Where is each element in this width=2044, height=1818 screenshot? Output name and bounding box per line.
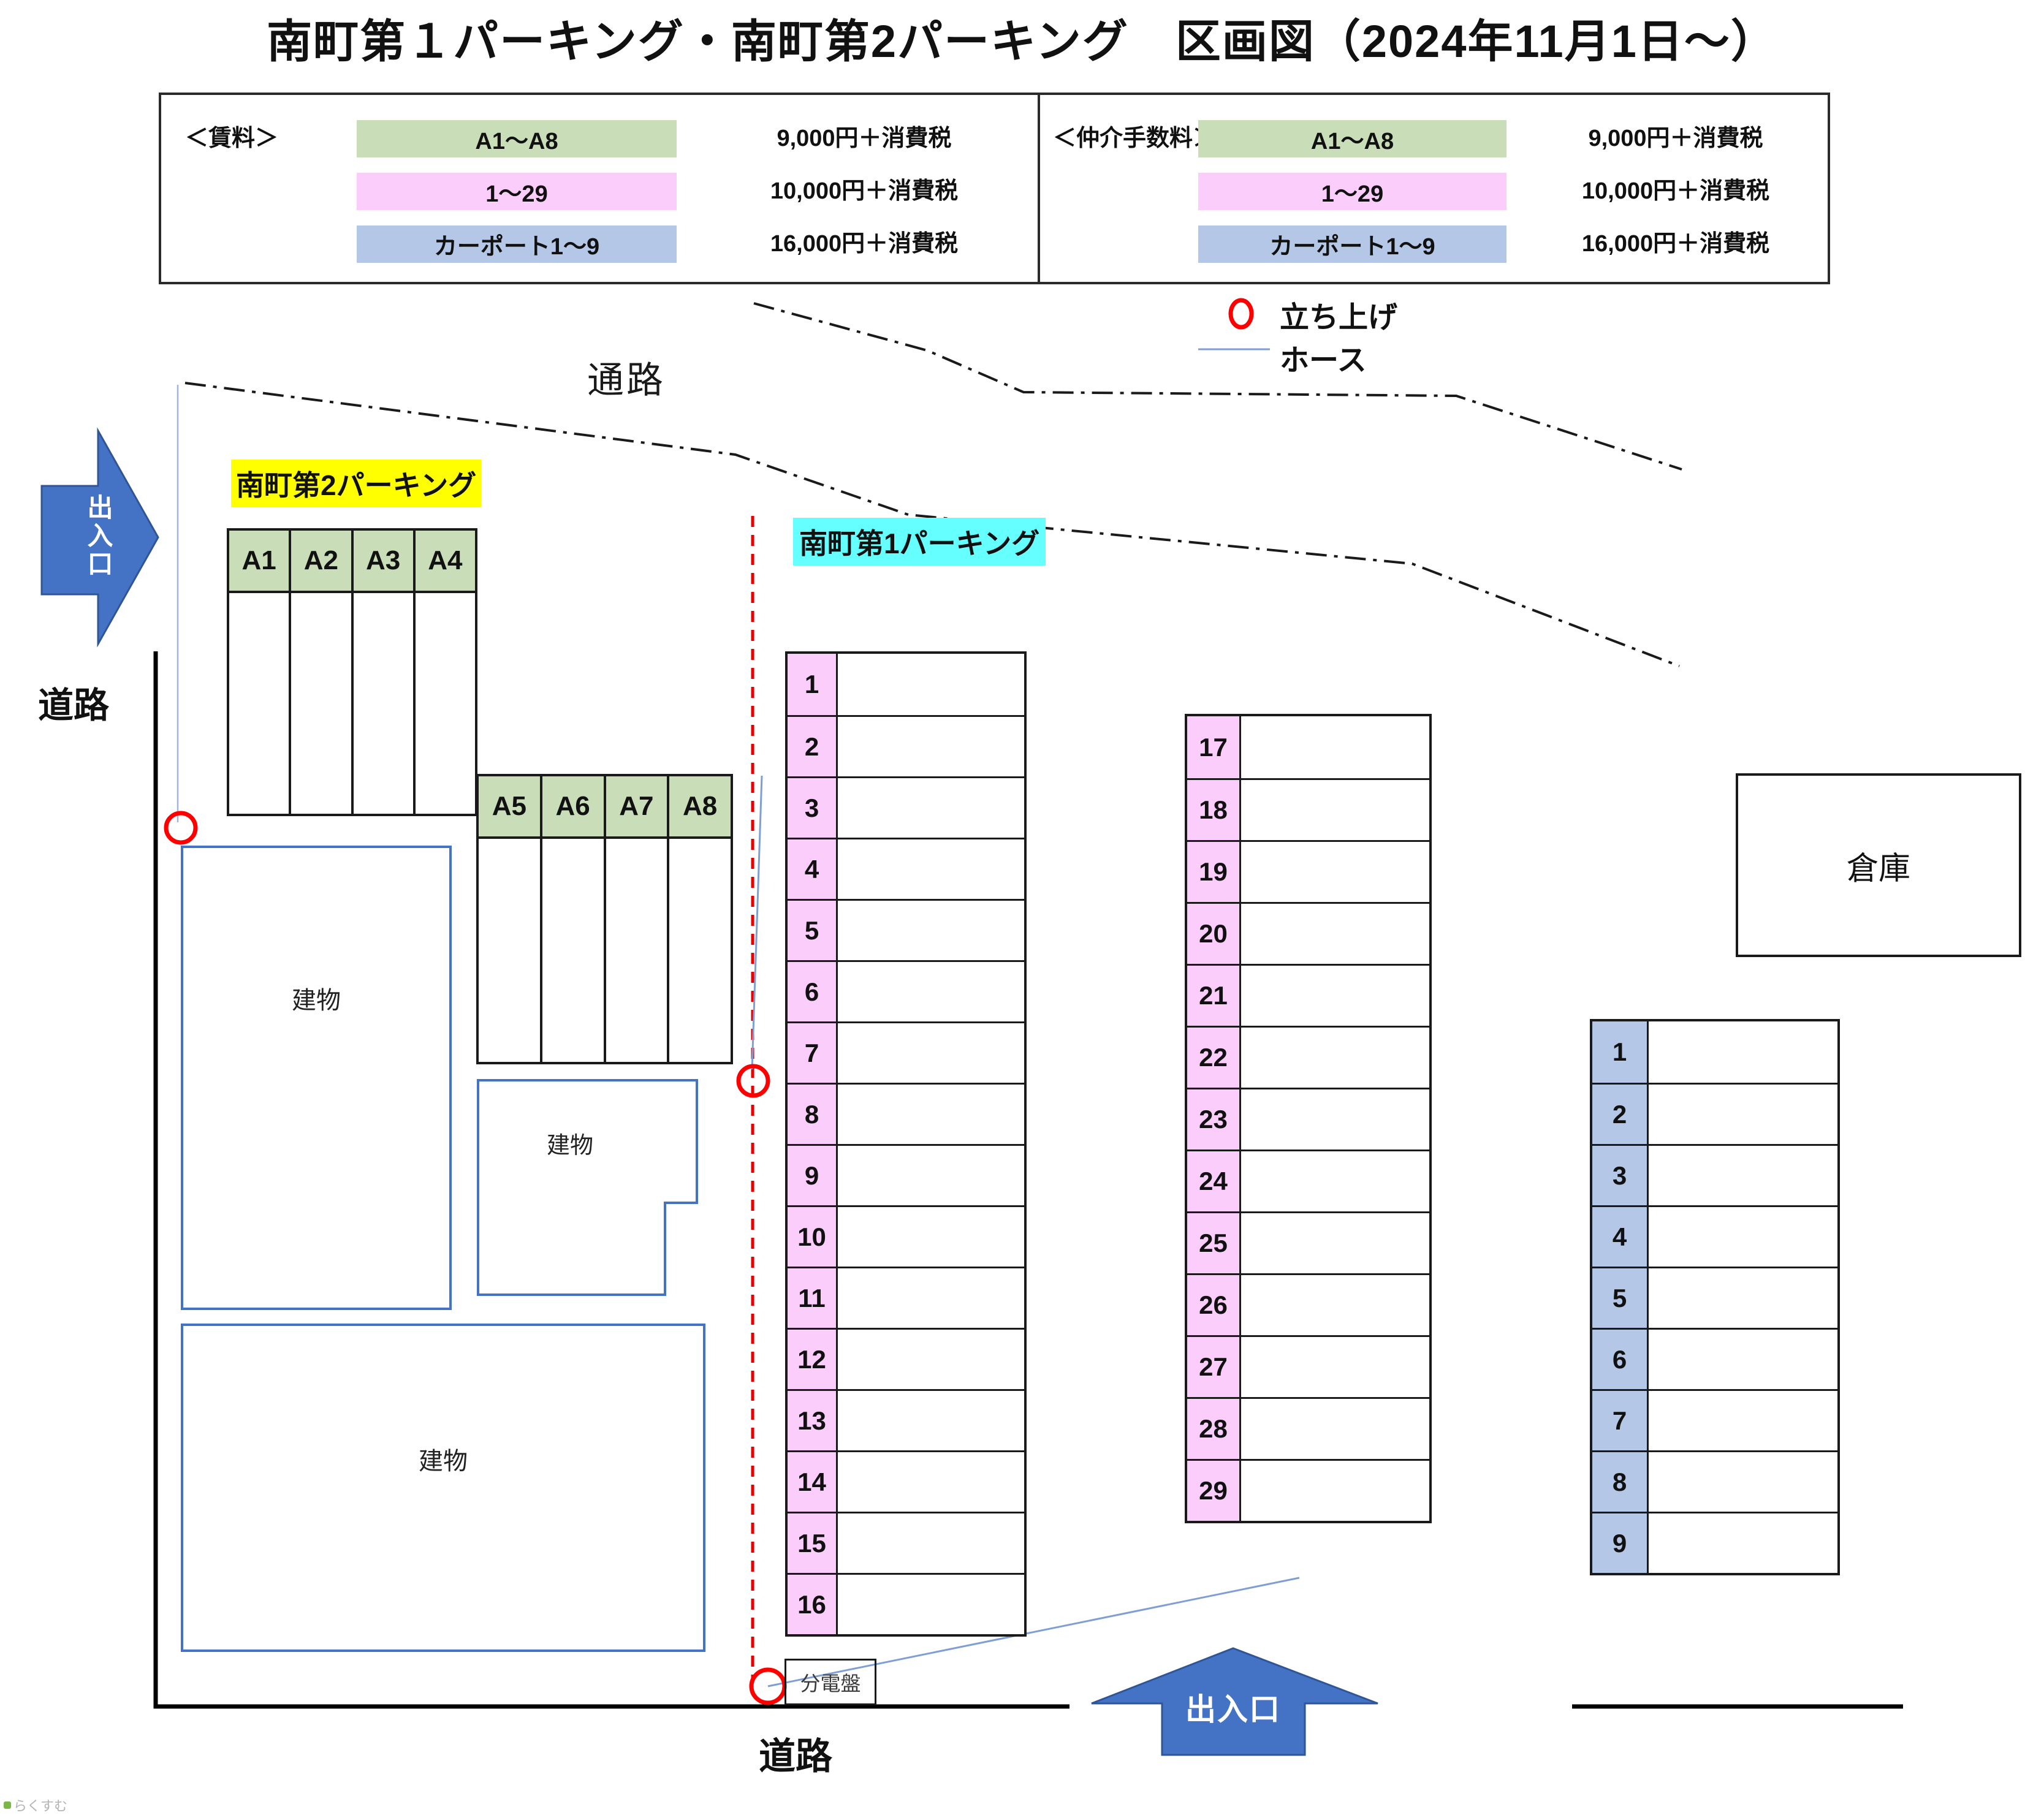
warehouse-box: 倉庫: [1736, 773, 2021, 957]
space-cell: [1241, 904, 1429, 964]
parking-space-row: 11: [788, 1267, 1024, 1328]
space-number: 20: [1187, 904, 1241, 964]
parking-space-column: A4: [413, 531, 475, 814]
parking-space-row: 22: [1187, 1026, 1429, 1088]
entrance-left-text: 出入口: [80, 494, 117, 592]
space-cell: [838, 717, 1024, 776]
space-number: 29: [1187, 1461, 1241, 1521]
lot1-spaces-1-16: 1 2 3 4 5 6: [785, 651, 1027, 1637]
space-number: 8: [1592, 1452, 1649, 1512]
parking-space-row: 17: [1187, 716, 1429, 778]
parking-space-row: 8: [788, 1083, 1024, 1144]
parking-space-row: 23: [1187, 1088, 1429, 1150]
space-cell: [1649, 1391, 1837, 1450]
space-number: 25: [1187, 1213, 1241, 1273]
space-cell: [1649, 1268, 1837, 1328]
space-number: 14: [788, 1452, 838, 1512]
parking-space-row: 6: [1592, 1328, 1837, 1389]
parking-space-row: 18: [1187, 778, 1429, 840]
parking-space-row: 5: [1592, 1267, 1837, 1328]
lot2-name-highlight: 南町第2パーキング: [231, 460, 481, 507]
passage-label: 通路: [587, 350, 666, 404]
parking-space-row: 26: [1187, 1273, 1429, 1335]
legend-row: A1～A8 9,000円＋消費税: [1040, 120, 1828, 157]
space-cell: [838, 839, 1024, 899]
hose-line-middle: [752, 776, 762, 1069]
parking-space-row: 7: [1592, 1389, 1837, 1450]
space-cell: [291, 593, 351, 814]
riser-circle-middle: [739, 1066, 768, 1096]
lot1-name-highlight: 南町第1パーキング: [793, 518, 1046, 566]
parking-space-row: 3: [788, 776, 1024, 838]
legend-price-text: 10,000円＋消費税: [1522, 173, 1829, 210]
parking-space-column: A3: [351, 531, 413, 814]
space-cell: [838, 1268, 1024, 1328]
space-number: 21: [1187, 966, 1241, 1026]
space-number: 3: [1592, 1146, 1649, 1205]
legend-row: カーポート1～9 16,000円＋消費税: [1040, 225, 1828, 263]
road-label-south: 道路: [759, 1727, 832, 1780]
legend-range-cell: カーポート1～9: [1198, 225, 1506, 263]
space-number: 7: [1592, 1391, 1649, 1450]
space-number: 2: [788, 717, 838, 776]
legend-range-cell: A1～A8: [1198, 120, 1506, 157]
space-cell: [1241, 1399, 1429, 1459]
watermark-text: らくすむ: [13, 1795, 67, 1815]
parking-space-row: 12: [788, 1328, 1024, 1389]
parking-space-row: 29: [1187, 1459, 1429, 1521]
space-number: 1: [788, 654, 838, 715]
building-2-outline: [478, 1080, 697, 1295]
distribution-panel-box: 分電盤: [785, 1659, 876, 1705]
space-cell: [1241, 716, 1429, 778]
space-cell: [1649, 1146, 1837, 1205]
space-number: 5: [788, 901, 838, 960]
space-number: 15: [788, 1513, 838, 1573]
space-number: 28: [1187, 1399, 1241, 1459]
space-cell: [838, 1023, 1024, 1083]
parking-space-row: 24: [1187, 1150, 1429, 1211]
space-number: 10: [788, 1207, 838, 1267]
space-cell: [606, 839, 667, 1062]
space-number: 6: [1592, 1330, 1649, 1389]
space-cell: [1241, 780, 1429, 840]
legend-price-text: 16,000円＋消費税: [1522, 225, 1829, 263]
space-number: 9: [788, 1146, 838, 1205]
legend-range-cell: カーポート1～9: [357, 225, 677, 263]
parking-space-row: 21: [1187, 964, 1429, 1026]
parking-space-row: 25: [1187, 1211, 1429, 1273]
rent-legend-section: ＜賃料＞ A1～A8 9,000円＋消費税 1～29 10,000円＋消費税 カ…: [161, 95, 1040, 282]
space-cell: [838, 778, 1024, 838]
legend-range-cell: 1～29: [357, 173, 677, 210]
parking-space-row: 16: [788, 1573, 1024, 1634]
parking-space-column: A8: [667, 776, 731, 1062]
legend-row: カーポート1～9 16,000円＋消費税: [161, 225, 1038, 263]
parking-space-row: 1: [788, 654, 1024, 715]
space-cell: [1241, 966, 1429, 1026]
space-cell: [1241, 1028, 1429, 1088]
space-number: 16: [788, 1575, 838, 1634]
parking-space-row: 7: [788, 1021, 1024, 1083]
space-number: 17: [1187, 716, 1241, 778]
parking-space-row: 6: [788, 960, 1024, 1021]
space-cell: [416, 593, 475, 814]
space-number: 4: [788, 839, 838, 899]
parking-space-row: 2: [1592, 1083, 1837, 1144]
passage-chain-line-upper: [754, 303, 1682, 469]
space-cell: [1241, 1089, 1429, 1150]
space-number: A1: [229, 531, 289, 593]
space-cell: [1241, 1213, 1429, 1273]
road-label-west: 道路: [38, 676, 109, 728]
entrance-bottom-text: 出入口: [1163, 1685, 1303, 1729]
space-number: 11: [788, 1268, 838, 1328]
space-cell: [1241, 1151, 1429, 1211]
space-number: 6: [788, 962, 838, 1021]
parking-space-column: A5: [479, 776, 540, 1062]
space-number: 12: [788, 1330, 838, 1389]
legend-row: 1～29 10,000円＋消費税: [161, 173, 1038, 210]
space-number: 1: [1592, 1021, 1649, 1083]
parking-space-row: 13: [788, 1389, 1024, 1450]
site-watermark: らくすむ: [4, 1795, 67, 1815]
parking-space-row: 27: [1187, 1335, 1429, 1397]
space-cell: [838, 1391, 1024, 1450]
riser-legend-circle: [1231, 300, 1252, 327]
rent-rows: A1～A8 9,000円＋消費税 1～29 10,000円＋消費税 カーポート1…: [161, 120, 1038, 263]
space-number: A5: [479, 776, 540, 839]
building-3-label: 建物: [181, 1441, 705, 1477]
space-cell: [1241, 1337, 1429, 1397]
space-cell: [1649, 1330, 1837, 1389]
parking-space-row: 9: [1592, 1512, 1837, 1573]
space-number: 18: [1187, 780, 1241, 840]
space-cell: [838, 1513, 1024, 1573]
space-cell: [542, 839, 604, 1062]
space-cell: [229, 593, 289, 814]
space-number: A4: [416, 531, 475, 593]
parking-space-row: 9: [788, 1144, 1024, 1205]
space-cell: [354, 593, 413, 814]
carport-spaces-1-9: 1 2 3 4 5 6: [1590, 1019, 1840, 1575]
legend-range-cell: A1～A8: [357, 120, 677, 157]
parking-space-column: A1: [229, 531, 289, 814]
legend-row: A1～A8 9,000円＋消費税: [161, 120, 1038, 157]
space-number: A3: [354, 531, 413, 593]
legend-range-cell: 1～29: [1198, 173, 1506, 210]
lot1-spaces-17-29: 17 18 19 20 21 22: [1185, 714, 1432, 1523]
space-number: 4: [1592, 1207, 1649, 1267]
space-number: 24: [1187, 1151, 1241, 1211]
riser-circle-west: [166, 813, 196, 843]
parking-space-row: 10: [788, 1205, 1024, 1267]
building-3-outline: [181, 1324, 705, 1652]
building-1-outline: [181, 846, 452, 1310]
space-cell: [1241, 1275, 1429, 1335]
space-cell: [838, 1575, 1024, 1634]
space-cell: [1649, 1207, 1837, 1267]
space-cell: [838, 1330, 1024, 1389]
parking-space-row: 4: [788, 838, 1024, 899]
space-cell: [1649, 1513, 1837, 1573]
space-cell: [838, 901, 1024, 960]
page-title: 南町第１パーキング・南町第2パーキング 区画図（2024年11月1日～）: [0, 5, 2044, 70]
space-number: 8: [788, 1085, 838, 1144]
watermark-logo-icon: [4, 1801, 11, 1809]
space-cell: [479, 839, 540, 1062]
space-number: 19: [1187, 842, 1241, 902]
parking-space-row: 1: [1592, 1021, 1837, 1083]
space-number: A2: [291, 531, 351, 593]
space-cell: [669, 839, 731, 1062]
building-1-label: 建物: [181, 980, 452, 1016]
space-cell: [838, 1085, 1024, 1144]
legend-price-text: 9,000円＋消費税: [1522, 120, 1829, 157]
lot2-spaces-a1-a4: A1 A2 A3 A4: [227, 528, 477, 816]
space-number: 2: [1592, 1085, 1649, 1144]
parking-space-row: 14: [788, 1450, 1024, 1512]
fee-legend-section: ＜仲介手数料＞ A1～A8 9,000円＋消費税 1～29 10,000円＋消費…: [1040, 95, 1828, 282]
space-number: A7: [606, 776, 667, 839]
parking-space-row: 3: [1592, 1144, 1837, 1205]
space-number: A8: [669, 776, 731, 839]
space-number: 22: [1187, 1028, 1241, 1088]
space-number: 5: [1592, 1268, 1649, 1328]
parking-space-row: 15: [788, 1512, 1024, 1573]
lot2-spaces-a5-a8: A5 A6 A7 A8: [476, 774, 733, 1064]
parking-space-column: A6: [540, 776, 604, 1062]
parking-space-column: A2: [289, 531, 351, 814]
space-cell: [1241, 1461, 1429, 1521]
price-legend-box: ＜賃料＞ A1～A8 9,000円＋消費税 1～29 10,000円＋消費税 カ…: [159, 93, 1830, 284]
space-number: 3: [788, 778, 838, 838]
space-cell: [838, 962, 1024, 1021]
space-cell: [1649, 1021, 1837, 1083]
space-cell: [1649, 1452, 1837, 1512]
building-2-label: 建物: [521, 1126, 619, 1160]
space-number: 27: [1187, 1337, 1241, 1397]
space-number: 23: [1187, 1089, 1241, 1150]
parking-space-row: 19: [1187, 840, 1429, 902]
space-cell: [1241, 842, 1429, 902]
space-cell: [838, 1207, 1024, 1267]
space-number: A6: [542, 776, 604, 839]
legend-price-text: 16,000円＋消費税: [711, 225, 1017, 263]
legend-price-text: 10,000円＋消費税: [711, 173, 1017, 210]
space-cell: [838, 654, 1024, 715]
fee-rows: A1～A8 9,000円＋消費税 1～29 10,000円＋消費税 カーポート1…: [1040, 120, 1828, 263]
space-number: 26: [1187, 1275, 1241, 1335]
parking-space-column: A7: [604, 776, 667, 1062]
parking-space-row: 28: [1187, 1397, 1429, 1459]
riser-hose-legend-label-line1: 立ち上げ: [1280, 293, 1397, 336]
riser-hose-legend-label-line2: ホース: [1280, 336, 1367, 379]
space-number: 7: [788, 1023, 838, 1083]
parking-space-row: 20: [1187, 902, 1429, 964]
space-number: 13: [788, 1391, 838, 1450]
legend-price-text: 9,000円＋消費税: [711, 120, 1017, 157]
legend-row: 1～29 10,000円＋消費税: [1040, 173, 1828, 210]
parking-space-row: 2: [788, 715, 1024, 776]
parking-space-row: 5: [788, 899, 1024, 960]
space-number: 9: [1592, 1513, 1649, 1573]
parking-space-row: 8: [1592, 1450, 1837, 1512]
parking-map-canvas: 南町第１パーキング・南町第2パーキング 区画図（2024年11月1日～） ＜賃料…: [0, 0, 2044, 1818]
space-cell: [838, 1146, 1024, 1205]
riser-circle-south: [751, 1670, 785, 1703]
space-cell: [838, 1452, 1024, 1512]
space-cell: [1649, 1085, 1837, 1144]
parking-space-row: 4: [1592, 1205, 1837, 1267]
